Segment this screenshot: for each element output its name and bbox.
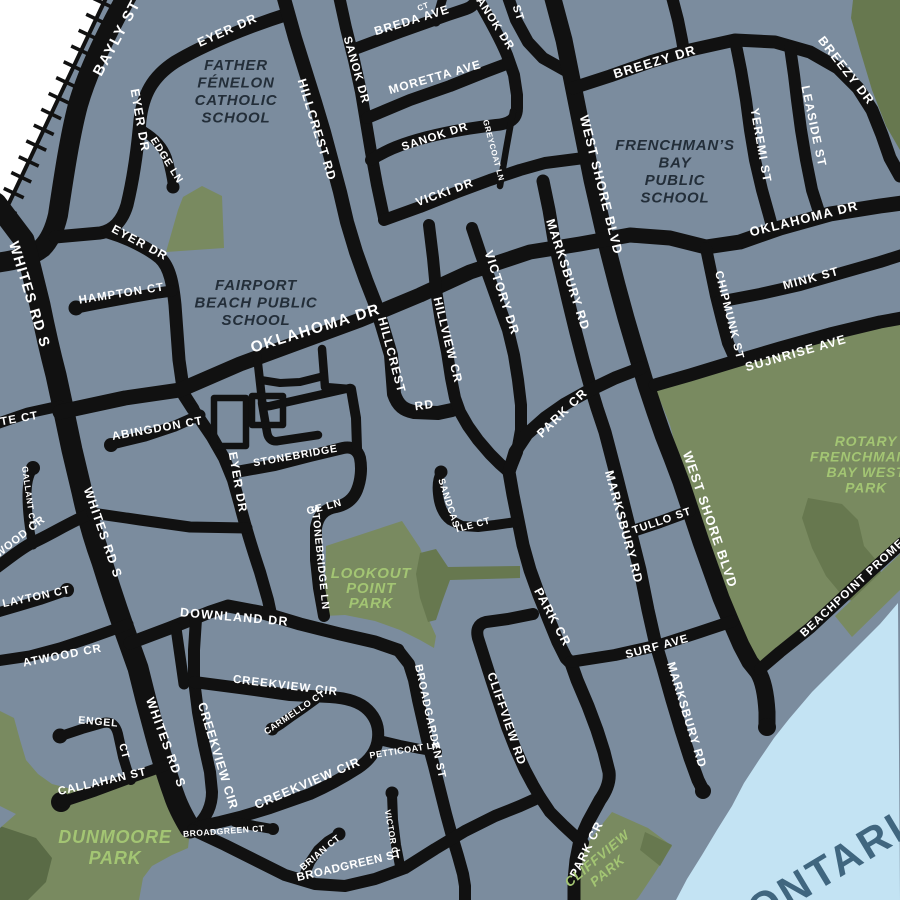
- svg-text:BEACH PUBLIC: BEACH PUBLIC: [195, 295, 318, 312]
- svg-text:FRENCHMAN’S: FRENCHMAN’S: [810, 449, 900, 465]
- svg-text:FATHER: FATHER: [204, 57, 268, 74]
- svg-text:PARK: PARK: [845, 480, 887, 496]
- svg-text:PARK: PARK: [89, 848, 143, 868]
- svg-text:FÉNELON: FÉNELON: [197, 75, 275, 92]
- svg-text:DUNMOORE: DUNMOORE: [58, 827, 172, 847]
- svg-text:BAY WEST: BAY WEST: [827, 464, 900, 480]
- svg-text:PARK: PARK: [349, 595, 394, 612]
- svg-text:BAY: BAY: [659, 155, 693, 172]
- svg-text:SCHOOL: SCHOOL: [222, 312, 291, 329]
- svg-text:FAIRPORT: FAIRPORT: [215, 277, 298, 294]
- svg-text:SCHOOL: SCHOOL: [641, 190, 710, 207]
- svg-text:CATHOLIC: CATHOLIC: [195, 92, 278, 109]
- svg-text:ROTARY: ROTARY: [835, 433, 898, 449]
- svg-text:PUBLIC: PUBLIC: [645, 172, 706, 189]
- svg-text:SCHOOL: SCHOOL: [202, 110, 271, 127]
- svg-text:FRENCHMAN’S: FRENCHMAN’S: [615, 137, 735, 154]
- svg-text:RD: RD: [414, 397, 435, 414]
